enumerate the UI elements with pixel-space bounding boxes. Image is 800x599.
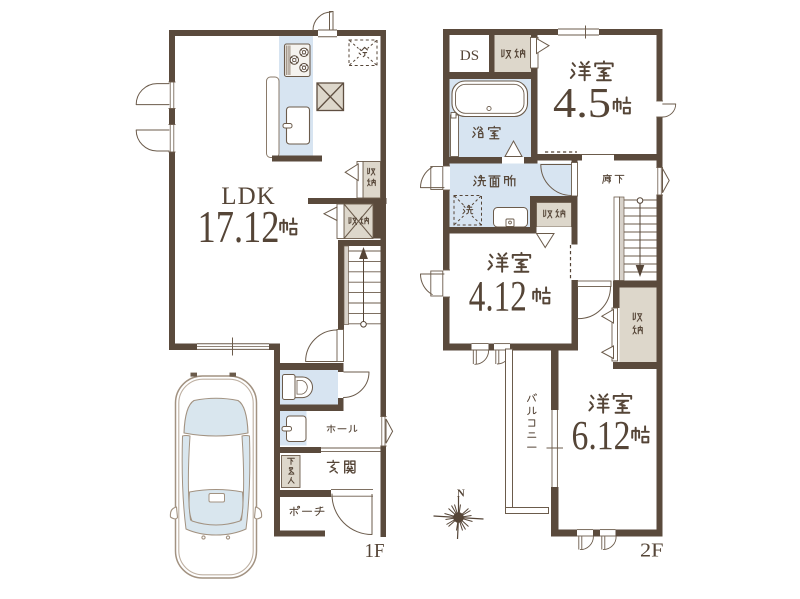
svg-text:4.5: 4.5	[553, 81, 611, 127]
svg-text:17.12: 17.12	[198, 201, 280, 252]
svg-text:N: N	[457, 488, 465, 500]
svg-text:6.12: 6.12	[572, 412, 631, 458]
svg-text:DS: DS	[460, 48, 479, 64]
svg-text:1F: 1F	[365, 540, 385, 562]
svg-text:4.12: 4.12	[469, 274, 527, 321]
svg-text:2F: 2F	[640, 540, 664, 562]
